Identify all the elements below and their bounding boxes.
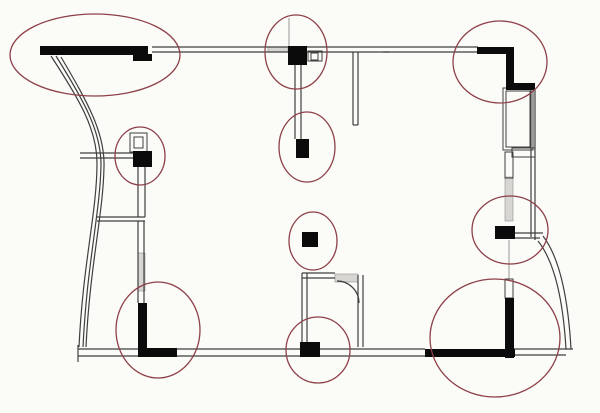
hatched-wall-segment-top bbox=[268, 47, 288, 52]
device-marker-top-center bbox=[288, 46, 307, 65]
hatched-window-strip-right bbox=[505, 177, 513, 221]
floor-plan-svg bbox=[0, 0, 600, 413]
bottom-left-thick-wall-horizontal bbox=[138, 348, 177, 357]
device-marker-left-wall bbox=[133, 151, 152, 167]
top-left-wall-step bbox=[133, 54, 152, 61]
floor-plan bbox=[0, 0, 600, 413]
device-marker-bottom-center bbox=[300, 342, 320, 357]
top-right-wall-step bbox=[512, 83, 535, 90]
bottom-right-thick-wall-horizontal bbox=[425, 349, 515, 357]
top-left-thick-wall bbox=[40, 46, 148, 55]
device-marker-upper-center bbox=[296, 139, 309, 158]
device-marker-center bbox=[302, 232, 318, 247]
device-marker-right-wall bbox=[495, 226, 515, 239]
